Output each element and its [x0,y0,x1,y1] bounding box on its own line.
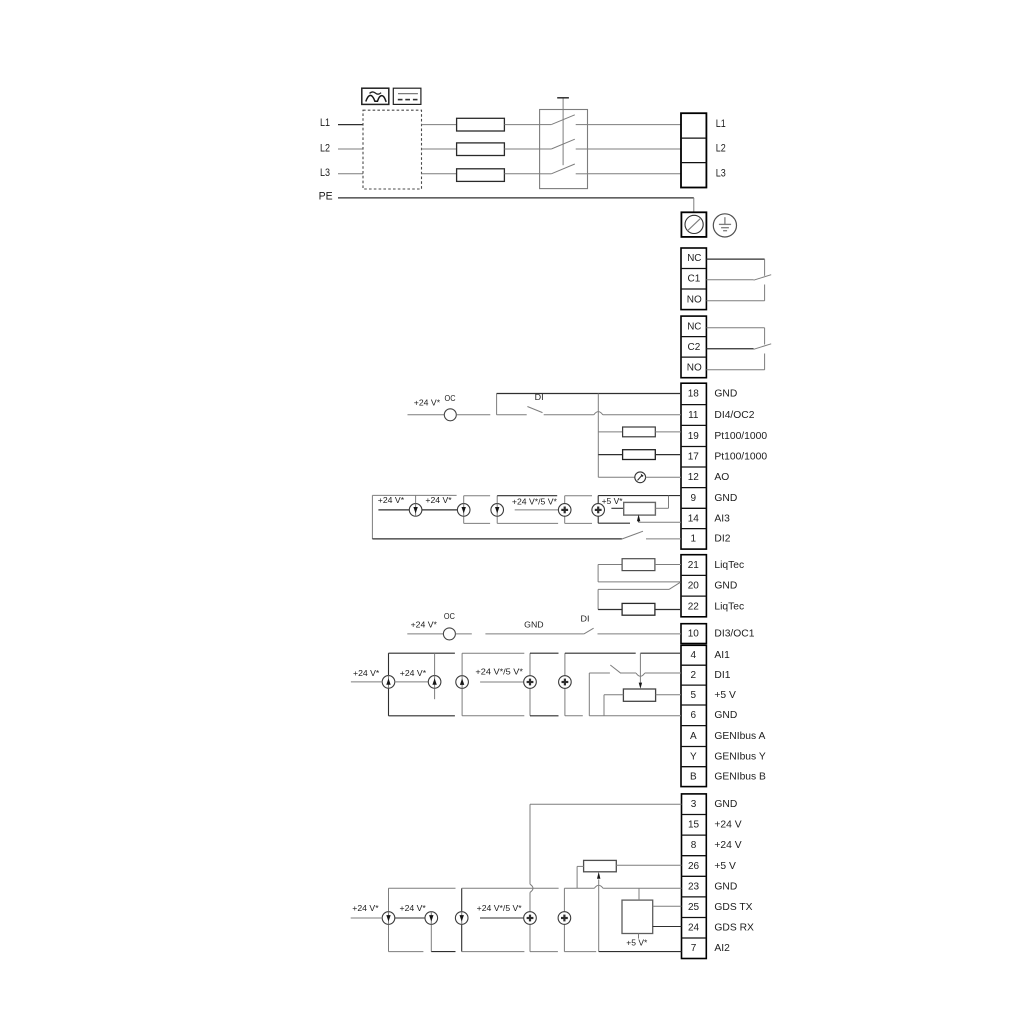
svg-text:+5 V: +5 V [714,861,736,872]
svg-text:A: A [690,731,697,742]
svg-text:8: 8 [691,840,697,851]
svg-text:6: 6 [691,710,697,721]
svg-text:L2: L2 [320,142,330,154]
svg-text:5: 5 [691,690,697,701]
svg-text:NO: NO [687,362,702,373]
svg-text:LiqTec: LiqTec [714,601,744,612]
svg-text:L1: L1 [320,117,330,129]
svg-text:AI3: AI3 [714,513,730,524]
svg-text:+24 V*: +24 V* [400,668,427,678]
svg-text:+24 V*: +24 V* [378,495,405,505]
svg-text:GENIbus A: GENIbus A [714,731,765,742]
svg-text:DI: DI [581,613,590,623]
svg-text:9: 9 [691,493,697,504]
svg-text:22: 22 [688,601,700,612]
svg-text:24: 24 [688,923,700,934]
svg-text:NO: NO [687,294,702,305]
svg-text:Pt100/1000: Pt100/1000 [714,431,767,442]
svg-text:+5 V*: +5 V* [626,937,648,947]
svg-text:+24 V: +24 V [714,840,741,851]
svg-text:+24 V*/5 V*: +24 V*/5 V* [512,496,558,506]
svg-text:7: 7 [691,943,697,954]
svg-text:L3: L3 [716,167,726,179]
svg-text:23: 23 [688,881,700,892]
svg-text:2: 2 [691,670,697,681]
svg-text:10: 10 [688,628,700,639]
svg-text:+24 V*/5 V*: +24 V*/5 V* [475,666,523,676]
svg-text:11: 11 [688,410,699,421]
svg-text:AI2: AI2 [714,943,730,954]
svg-text:AO: AO [714,472,729,483]
svg-text:GND: GND [524,619,543,629]
svg-text:GND: GND [714,881,737,892]
svg-text:+5 V: +5 V [714,690,736,701]
svg-text:NC: NC [687,321,702,332]
svg-text:+5 V*: +5 V* [602,496,624,506]
svg-text:21: 21 [688,560,700,571]
svg-text:+24 V*: +24 V* [400,903,427,913]
svg-text:C2: C2 [688,342,701,353]
svg-text:18: 18 [688,389,700,400]
svg-text:GND: GND [714,581,737,592]
svg-text:15: 15 [688,820,700,831]
svg-text:17: 17 [688,452,700,463]
svg-text:+24 V*/5 V*: +24 V*/5 V* [477,903,523,913]
svg-text:OC: OC [444,611,455,621]
svg-text:+24 V*: +24 V* [352,903,379,913]
svg-text:14: 14 [688,513,700,524]
svg-text:GENIbus B: GENIbus B [714,771,766,782]
svg-text:NC: NC [687,253,702,264]
svg-text:L1: L1 [716,118,726,130]
svg-text:+24 V*: +24 V* [414,397,441,407]
svg-text:26: 26 [688,861,700,872]
svg-text:GND: GND [714,389,737,400]
svg-text:+24 V*: +24 V* [425,495,452,505]
svg-text:GENIbus Y: GENIbus Y [714,751,765,762]
svg-text:PE: PE [319,190,333,202]
svg-text:C1: C1 [688,274,701,285]
svg-text:25: 25 [688,902,700,913]
svg-text:+24 V*: +24 V* [353,668,380,678]
svg-text:12: 12 [688,472,700,483]
svg-text:L2: L2 [716,143,726,155]
svg-text:20: 20 [688,581,700,592]
svg-text:DI4/OC2: DI4/OC2 [714,410,754,421]
svg-text:DI: DI [535,392,544,402]
svg-text:19: 19 [688,431,700,442]
svg-text:GDS RX: GDS RX [714,923,754,934]
svg-text:1: 1 [691,534,697,545]
svg-text:GND: GND [714,799,737,810]
svg-text:GND: GND [714,493,737,504]
svg-text:OC: OC [445,393,456,403]
svg-text:L3: L3 [320,167,330,179]
svg-text:GND: GND [714,710,737,721]
svg-text:LiqTec: LiqTec [714,560,744,571]
svg-text:4: 4 [691,650,697,661]
svg-text:Pt100/1000: Pt100/1000 [714,452,767,463]
svg-text:+24 V*: +24 V* [411,619,438,629]
svg-text:B: B [690,771,697,782]
svg-text:+24 V: +24 V [714,820,741,831]
svg-text:DI3/OC1: DI3/OC1 [714,628,754,639]
svg-text:DI1: DI1 [714,670,730,681]
svg-text:Y: Y [690,751,697,762]
svg-text:AI1: AI1 [714,650,730,661]
svg-text:GDS TX: GDS TX [714,902,752,913]
svg-text:DI2: DI2 [714,534,730,545]
svg-text:3: 3 [691,799,697,810]
